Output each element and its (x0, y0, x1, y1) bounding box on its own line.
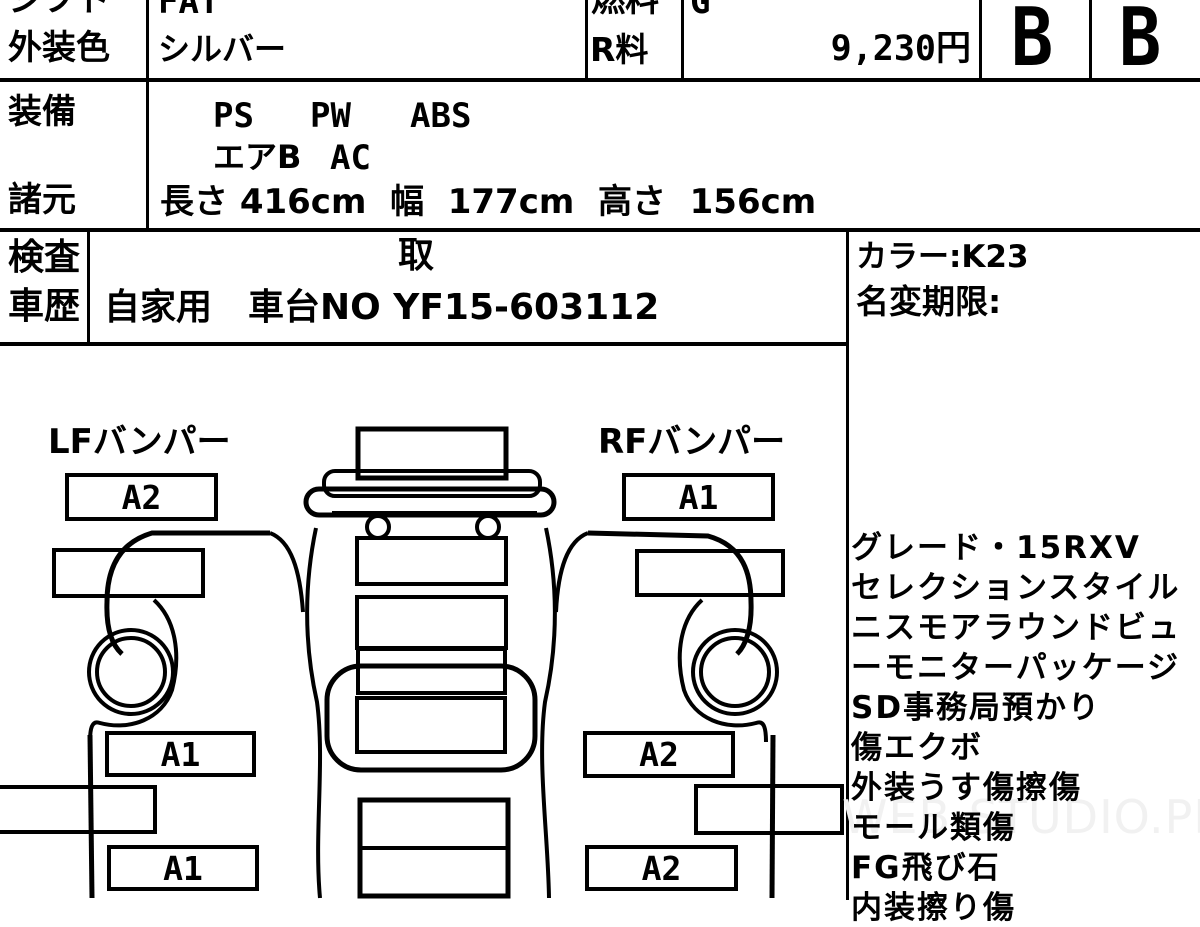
right-wheel-inner (701, 638, 769, 706)
right-lower-grade-box: A2 (585, 845, 738, 891)
washer-left (367, 516, 389, 538)
lf-bumper-grade-box: A2 (65, 473, 218, 521)
right-door-grade-box: A2 (583, 731, 735, 778)
rf-bumper-grade-box: A1 (622, 473, 775, 521)
left-profile-inner (270, 533, 303, 612)
windshield-box (357, 597, 506, 648)
left-wheel-outer (89, 630, 173, 714)
rf-bumper-label: RFバンパー (598, 424, 785, 461)
right-wheel-outer (693, 630, 777, 714)
left-lower-grade-box: A1 (107, 845, 259, 891)
hood-box (357, 538, 506, 584)
left-wheel-inner (97, 638, 165, 706)
right-profile-roof (588, 533, 751, 654)
right-profile-inner (556, 533, 588, 612)
roof-box-2 (357, 698, 505, 752)
right-profile-lower (772, 735, 773, 898)
lf-bumper-label: LFバンパー (48, 424, 231, 461)
body-right-edge (542, 528, 555, 898)
left-profile-roof (107, 533, 270, 654)
roof-box-1 (358, 649, 505, 693)
left-profile-lower (90, 735, 92, 898)
left-door-grade-box: A1 (105, 731, 256, 777)
body-left-edge (307, 528, 320, 898)
washer-right (477, 516, 499, 538)
auction-sheet: { "header": { "shift_label": "シフト", "shi… (0, 0, 1200, 900)
